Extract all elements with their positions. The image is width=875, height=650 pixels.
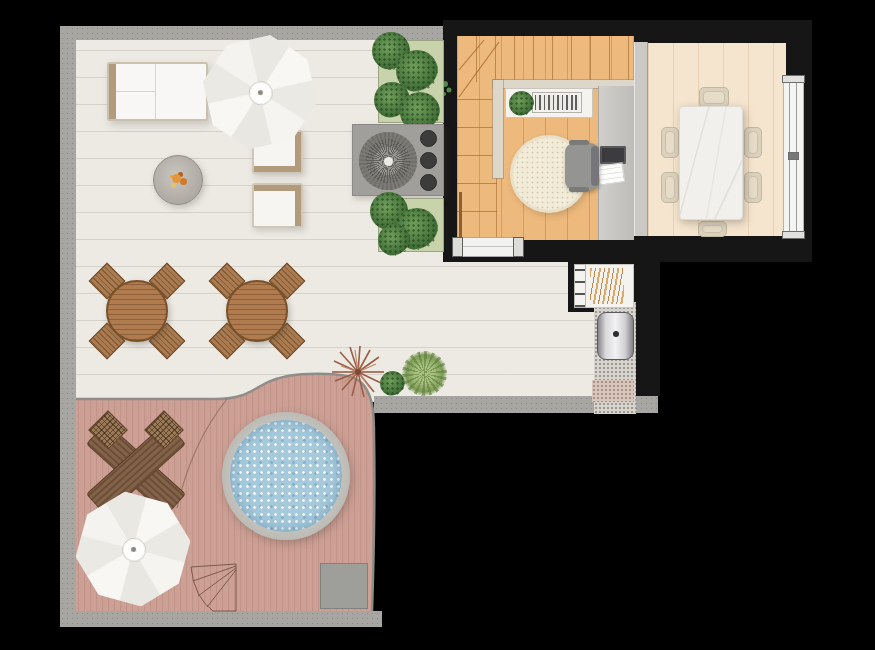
stair-upper-run: [476, 36, 634, 82]
shelf-potted-plant: [509, 91, 534, 116]
stair-railing-vertical: [493, 80, 503, 178]
dining-chair-right-1: [744, 127, 762, 158]
bistro-table-2: [226, 280, 288, 342]
floor-plan-canvas: [0, 0, 875, 650]
water-heater: [597, 312, 634, 360]
gravel-patch: [592, 380, 634, 402]
grill-knob: [420, 174, 437, 191]
stair-left-run: [457, 95, 497, 240]
office-chair: [565, 143, 599, 190]
sofa-frame: [109, 64, 116, 119]
chair-frame: [254, 166, 301, 172]
sofa-seam: [116, 91, 155, 92]
grill-burner: [359, 132, 417, 190]
window-handle: [788, 152, 799, 160]
room-partition: [634, 42, 648, 236]
window-cap-bottom: [782, 231, 805, 239]
storage-shelf-rails: [574, 264, 586, 308]
marble-dining-table: [679, 106, 743, 220]
parapet-bottom-left: [60, 611, 382, 627]
dining-chair-top: [699, 87, 729, 108]
louver-grille: [533, 93, 581, 112]
chair-armrest-bottom: [569, 187, 589, 192]
door-cap-left: [452, 237, 463, 257]
sofa-seam: [155, 64, 156, 119]
hot-tub: [222, 412, 350, 540]
deck-step-marks: [191, 564, 236, 611]
door-cap-right: [513, 237, 524, 257]
chair-backrest: [591, 146, 599, 186]
lounge-chair-2: [252, 183, 303, 228]
hot-tub-water: [230, 420, 342, 532]
planter-plant: [378, 224, 410, 256]
floor-mat: [320, 563, 368, 609]
dining-chair-left-2: [661, 172, 679, 203]
parapet-left: [60, 26, 76, 627]
chair-frame: [254, 185, 301, 191]
bistro-table-1: [106, 280, 168, 342]
grill-knob: [420, 152, 437, 169]
window-cap-top: [782, 75, 805, 83]
firewood-stack: [590, 268, 624, 304]
outdoor-sofa: [107, 62, 208, 121]
barbecue-grill: [352, 124, 444, 196]
grass-plant: [402, 351, 447, 396]
flame-icon: [172, 174, 181, 183]
fire-pit-table: [153, 155, 203, 205]
papers: [597, 162, 626, 185]
wall-edge-line: [459, 192, 462, 238]
dining-chair-bottom: [698, 221, 727, 237]
dining-chair-left-1: [661, 127, 679, 158]
chair-armrest-top: [569, 140, 589, 145]
chair-frame: [295, 185, 301, 226]
grill-knob: [420, 130, 437, 147]
dining-chair-right-2: [744, 172, 762, 203]
